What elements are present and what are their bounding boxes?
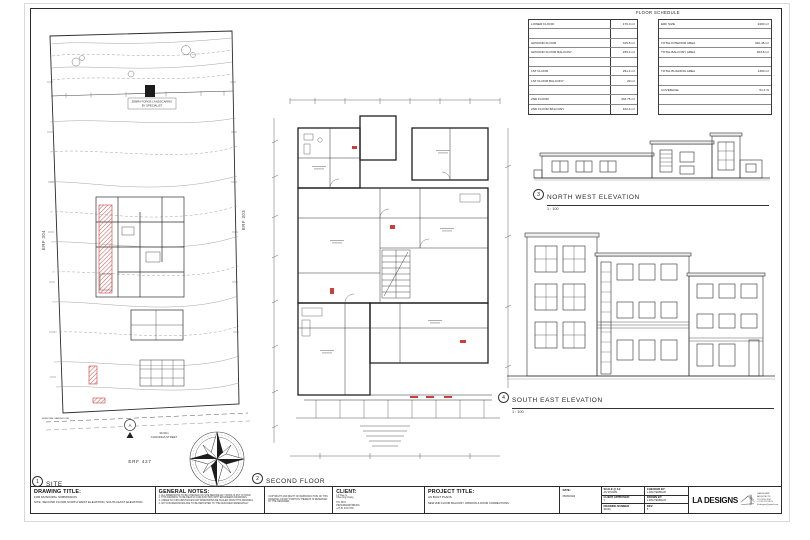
copyright-cell: COPYRIGHT AND RIGHT OF REPRODUCTION OF T… bbox=[265, 487, 333, 513]
contour-lines bbox=[50, 118, 239, 390]
logo-contact: LANDSCAPE ARCHITECTS P.O. BOX 4567 +27 8… bbox=[757, 493, 778, 507]
second-floor-plan-drawing bbox=[260, 88, 518, 470]
floor-schedule-table-totals: ERF SIZE2400 m² TOTAL INTERIOR AREA910.4… bbox=[658, 19, 772, 115]
schedule-row bbox=[659, 105, 771, 114]
site-plan-drawing: ZEBRA FORGE LANDSCAPING BY SPECIALIST bbox=[36, 22, 264, 492]
schedule-row bbox=[659, 29, 771, 38]
date-value: 05/05/2024 bbox=[563, 495, 598, 498]
schedule-row: GROUND FLOOR315.8 m² bbox=[529, 39, 637, 48]
se-elevation-scale: 1 : 100 bbox=[512, 410, 774, 414]
se-elevation-label: 4 SOUTH EAST ELEVATION 1 : 100 bbox=[498, 389, 774, 414]
drawing-title-header: DRAWING TITLE: bbox=[34, 489, 152, 495]
schedule-row: ERF SIZE2400 m² bbox=[659, 20, 771, 29]
landscape-note-line2: BY SPECIALIST bbox=[142, 104, 163, 108]
schedule-row bbox=[529, 29, 637, 38]
schedule-row bbox=[529, 58, 637, 67]
schedule-row: GROUND FLOOR BALCONY239.4 m² bbox=[529, 48, 637, 57]
drawing-number-cell: DRAWING NUMBER SD/49 bbox=[602, 504, 645, 513]
schedule-row: 1ST FLOOR BALCONY29 m² bbox=[529, 76, 637, 85]
nw-elevation-scale: 1 : 100 bbox=[547, 207, 769, 211]
floor-schedule: FLOOR SCHEDULE LOWER FLOOR170.0 m² GROUN… bbox=[528, 10, 788, 115]
approval-grid: SCALE @ A1: AS SHOWN CHECKED BY: L.RAUTE… bbox=[602, 487, 690, 513]
se-elevation-drawing bbox=[505, 218, 777, 386]
street-label-line2: CHANDIGA STREET bbox=[151, 435, 178, 439]
title-block: DRAWING TITLE: FOR MUNICIPAL SUBMISSION … bbox=[30, 486, 782, 514]
date-cell: DATE: 05/05/2024 bbox=[560, 487, 602, 513]
schedule-row: TOTAL INTERIOR AREA910.45 m² bbox=[659, 39, 771, 48]
client-line: +27 81 234 0739 bbox=[336, 508, 421, 511]
floor-schedule-table-areas: LOWER FLOOR170.0 m² GROUND FLOOR315.8 m²… bbox=[528, 19, 638, 115]
schedule-row bbox=[659, 76, 771, 85]
garden-line-label: MUNICIPAL GARDEN LINE bbox=[42, 417, 70, 420]
general-note: 4. ANY DISCREPANCIES ARE TO BE REPORTED … bbox=[159, 503, 262, 506]
erf-303-label: ERF 303 bbox=[241, 210, 246, 230]
logo-wordmark: LA DESIGNS bbox=[692, 496, 738, 505]
section-marker-arrow bbox=[127, 432, 134, 438]
schedule-row bbox=[659, 95, 771, 104]
nw-elevation-title: NORTH WEST ELEVATION bbox=[547, 194, 640, 201]
erf-427-label: ERF 427 bbox=[128, 459, 151, 464]
client-approved-cell: CLIENT APPROVED: Y bbox=[602, 496, 645, 505]
project-title-line2: NEW 2ND FLOOR BALCONY, WINDOW & DOOR COR… bbox=[428, 502, 556, 505]
second-floor-number-bubble: 2 bbox=[252, 473, 263, 484]
schedule-row: COVERAGE51.3 % bbox=[659, 86, 771, 95]
second-floor-title: SECOND FLOOR bbox=[266, 478, 325, 485]
schedule-row: LOWER FLOOR170.0 m² bbox=[529, 20, 637, 29]
drawing-sheet: ZEBRA FORGE LANDSCAPING BY SPECIALIST bbox=[0, 0, 810, 540]
roof-sketch-icon bbox=[740, 490, 755, 510]
dimension-lines bbox=[272, 98, 511, 459]
checked-by-cell: CHECKED BY: L.RAUTENBACH bbox=[645, 487, 688, 496]
schedule-row: 1ST FLOOR291.4 m² bbox=[529, 67, 637, 76]
balcony bbox=[296, 395, 500, 446]
rev-cell: REV: 5 bbox=[645, 504, 688, 513]
nw-elevation-label: 3 NORTH WEST ELEVATION 1 : 100 bbox=[533, 186, 769, 211]
scale-cell: SCALE @ A1: AS SHOWN bbox=[602, 487, 645, 496]
drawing-title-line2: SITE, SECOND FLOOR,NORTH WEST ELEVATION,… bbox=[34, 501, 152, 505]
section-marker-label: A bbox=[128, 423, 131, 428]
logo-cell: LA DESIGNS LANDSCAPE ARCHITECTS P.O. BOX… bbox=[689, 487, 781, 513]
schedule-row bbox=[529, 86, 637, 95]
schedule-row: TOTAL BUILDING AREA1300 m² bbox=[659, 67, 771, 76]
se-elevation-title: SOUTH EAST ELEVATION bbox=[512, 397, 603, 404]
nw-elevation-drawing bbox=[532, 126, 772, 186]
floor-schedule-title: FLOOR SCHEDULE bbox=[528, 10, 788, 15]
schedule-row: 2ND FLOOR BALCONY162.4 m² bbox=[529, 105, 637, 114]
site-structure-marker bbox=[145, 85, 155, 97]
drawing-title-cell: DRAWING TITLE: FOR MUNICIPAL SUBMISSION … bbox=[31, 487, 156, 513]
project-title-line1: AS BUILT PLANS bbox=[428, 496, 556, 500]
project-title-header: PROJECT TITLE: bbox=[428, 489, 556, 495]
erf-304-label: ERF 304 bbox=[41, 230, 46, 250]
plan-red-corrections bbox=[330, 146, 466, 398]
nw-elevation-number-bubble: 3 bbox=[533, 189, 544, 200]
general-notes-cell: GENERAL NOTES: 1. ALL DIMENSIONS TO BE C… bbox=[156, 487, 266, 513]
stairs bbox=[382, 250, 410, 298]
schedule-row bbox=[659, 58, 771, 67]
schedule-row: TOTAL BALCONY AREA403.8 m² bbox=[659, 48, 771, 57]
se-elevation-number-bubble: 4 bbox=[498, 392, 509, 403]
client-cell: CLIENT: L.P Dee G Cheu-ling Chang P.O. B… bbox=[333, 487, 425, 513]
drawn-by-cell: DRAWN BY: L.RAUTENBACH bbox=[645, 496, 688, 505]
date-label: DATE: bbox=[563, 489, 598, 492]
client-line: Cheu-ling Chang bbox=[336, 497, 421, 500]
compass-rose-icon bbox=[190, 432, 244, 486]
copyright-text: COPYRIGHT AND RIGHT OF REPRODUCTION OF T… bbox=[268, 496, 329, 505]
project-title-cell: PROJECT TITLE: AS BUILT PLANS NEW 2ND FL… bbox=[425, 487, 560, 513]
schedule-row: 2ND FLOOR333.75 m² bbox=[529, 95, 637, 104]
